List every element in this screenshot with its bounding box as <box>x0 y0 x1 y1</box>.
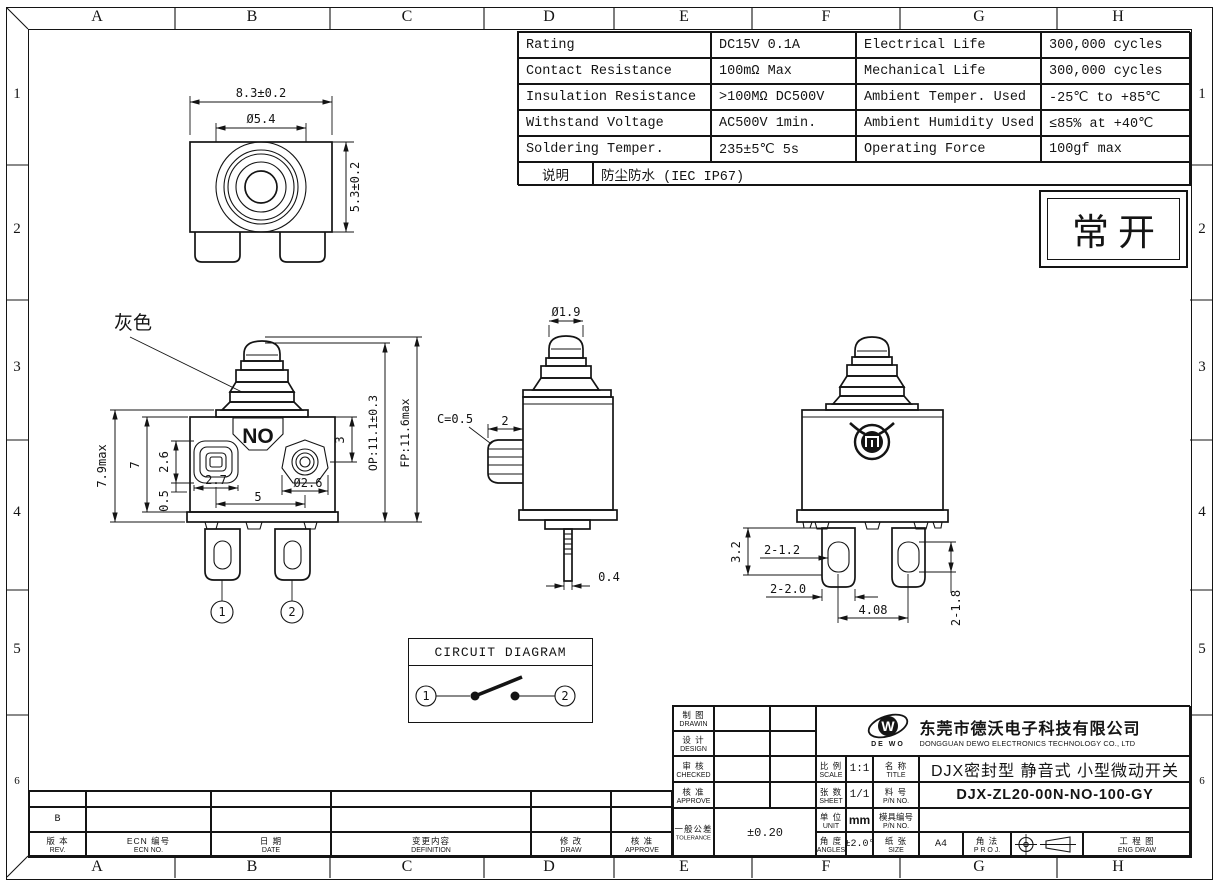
spec-note-label: 说明 <box>518 162 593 186</box>
paper-size-value: A4 <box>919 832 963 857</box>
label-cn: 单 位 <box>820 811 842 823</box>
first-angle-projection-icon <box>1012 833 1082 856</box>
spec-table: Rating DC15V 0.1A Electrical Life 300,00… <box>517 31 1190 185</box>
col-label-bottom: H <box>1103 858 1133 876</box>
row-label-right: 3 <box>1192 359 1212 376</box>
state-box: 常开 <box>1039 190 1188 268</box>
rev-empty-cell <box>531 807 611 832</box>
paper-size-label: 纸 张 SIZE <box>873 832 919 857</box>
row-label-left: 3 <box>7 359 27 376</box>
label-cn: 审 核 <box>682 760 704 772</box>
drawing-title: DJX密封型 静音式 小型微动开关 <box>919 756 1191 782</box>
scale-value: 1:1 <box>846 756 873 782</box>
col-label-bottom: D <box>534 858 564 876</box>
spec-label: Operating Force <box>856 136 1041 162</box>
rev-empty-cell <box>211 807 331 832</box>
unit-label: 单 位 UNIT <box>816 808 846 832</box>
title-block: 制 图 DRAWIN 设 计 DESIGN 审 核 CHECKED 核 准 AP… <box>672 705 1190 856</box>
label-en: DESIGN <box>680 746 707 753</box>
rev-empty-cell <box>611 807 673 832</box>
label-en: APPROVE <box>625 847 659 854</box>
rev-empty-cell <box>29 791 86 807</box>
col-label-top: B <box>237 8 267 26</box>
rev-header-rev: 版 本REV. <box>29 832 86 857</box>
circuit-terminal-1: 1 <box>422 689 429 703</box>
circuit-title: CIRCUIT DIAGRAM <box>409 639 592 666</box>
dim-boss-length: 2 <box>501 414 508 428</box>
label-cn: 日 期 <box>260 835 282 847</box>
rev-empty-cell <box>531 791 611 807</box>
row-label-left: 2 <box>7 221 27 238</box>
spec-label: Rating <box>518 32 711 58</box>
angles-value: ±2.0° <box>846 832 873 857</box>
rev-header-ecn: ECN 编号ECN NO. <box>86 832 211 857</box>
label-cn: 设 计 <box>682 734 704 746</box>
dim-base-height: 0.5 <box>157 490 171 512</box>
label-cn: 修 改 <box>560 835 582 847</box>
label-cn: 纸 张 <box>885 835 907 847</box>
label-cn: ECN 编号 <box>127 835 170 847</box>
label-en: CHECKED <box>676 772 710 779</box>
label-en: REV. <box>50 847 66 854</box>
spec-label: Withstand Voltage <box>518 110 711 136</box>
angles-label: 角 度 ANGLES <box>816 832 846 857</box>
label-en: SIZE <box>888 847 904 854</box>
circuit-diagram: CIRCUIT DIAGRAM 1 2 <box>408 638 593 723</box>
dim-height: 5.3±0.2 <box>348 162 362 213</box>
col-label-bottom: C <box>392 858 422 876</box>
spec-label: Mechanical Life <box>856 58 1041 84</box>
rev-header-draw: 修 改DRAW <box>531 832 611 857</box>
label-en: DATE <box>262 847 280 854</box>
spec-value: 235±5℃ 5s <box>711 136 856 162</box>
spec-label: Ambient Humidity Used <box>856 110 1041 136</box>
spec-value: 100mΩ Max <box>711 58 856 84</box>
rev-empty-cell <box>331 807 531 832</box>
spec-value: -25℃ to +85℃ <box>1041 84 1191 110</box>
circuit-symbol: 1 2 <box>409 666 592 722</box>
rev-header-definition: 变更内容DEFINITION <box>331 832 531 857</box>
label-en: TOLERANCE <box>676 836 711 842</box>
col-label-top: E <box>669 8 699 26</box>
dim-pitch: 5 <box>254 490 261 504</box>
col-label-top: A <box>82 8 112 26</box>
spec-label: Soldering Temper. <box>518 136 711 162</box>
spec-value: 300,000 cycles <box>1041 58 1191 84</box>
dim-circle-dia: Ø5.4 <box>247 112 276 126</box>
label-cn: 制 图 <box>682 709 704 721</box>
spec-label: Contact Resistance <box>518 58 711 84</box>
sheet-label: 张 数 SHEET <box>816 782 846 808</box>
rear-view: 3.2 2-1.2 2-2.0 4.08 2-1.8 <box>730 305 1010 650</box>
spec-value: 100gf max <box>1041 136 1191 162</box>
col-label-top: F <box>811 8 841 26</box>
checked-label: 审 核 CHECKED <box>673 756 714 782</box>
label-cn: 变更内容 <box>412 835 450 847</box>
dim-width: 8.3±0.2 <box>236 86 287 100</box>
dim-hole-width: 2-1.2 <box>764 543 800 557</box>
tolerance-value: ±0.20 <box>714 808 816 857</box>
dim-chamfer: C=0.5 <box>437 412 473 426</box>
row-label-left: 5 <box>7 641 27 658</box>
dim-terminal-sq: 2.6 <box>157 451 171 473</box>
company-block: W DE WO 东莞市德沃电子科技有限公司 DONGGUAN DEWO ELEC… <box>816 706 1191 756</box>
design-signature-cell <box>714 731 770 756</box>
logo-subtext: DE WO <box>872 741 906 748</box>
row-label-left: 6 <box>7 775 27 787</box>
terminal-1-label: 1 <box>218 605 225 619</box>
scale-label: 比 例 SCALE <box>816 756 846 782</box>
col-label-top: G <box>964 8 994 26</box>
label-cn: 工 程 图 <box>1119 835 1154 847</box>
label-cn: 料 号 <box>885 786 907 798</box>
col-label-bottom: A <box>82 858 112 876</box>
rev-empty-cell <box>86 807 211 832</box>
dim-total-height: 7.9max <box>95 444 109 487</box>
eng-draw-label: 工 程 图 ENG DRAW <box>1083 832 1191 857</box>
label-en: ENG DRAW <box>1118 847 1156 854</box>
company-name-cn: 东莞市德沃电子科技有限公司 <box>919 715 1140 739</box>
approve-signature-cell <box>714 782 770 808</box>
rev-empty-cell <box>611 791 673 807</box>
spec-label: Insulation Resistance <box>518 84 711 110</box>
label-cn: 张 数 <box>820 786 842 798</box>
dim-depth: 3 <box>333 436 347 443</box>
label-cn: 一般公差 <box>674 823 712 835</box>
label-cn: 角 法 <box>976 835 998 847</box>
gray-color-label: 灰色 <box>114 312 152 334</box>
dim-lug-offset: 3.2 <box>729 541 743 563</box>
dim-hole-height: 2-1.8 <box>949 590 963 626</box>
revision-table: B 版 本REV. ECN 编号ECN NO. 日 期DATE 变更内容DEFI… <box>28 790 672 856</box>
label-cn: 名 称 <box>885 760 907 772</box>
spec-note-value: 防尘防水 (IEC IP67) <box>593 162 1191 186</box>
rev-empty-cell <box>211 791 331 807</box>
dim-fp: FP:11.6max <box>398 398 412 467</box>
label-en: DRAWIN <box>679 721 707 728</box>
mold-number-value <box>919 808 1191 832</box>
top-view: 8.3±0.2 Ø5.4 5.3±0.2 <box>110 80 440 285</box>
col-label-top: H <box>1103 8 1133 26</box>
spec-value: ≤85% at +40℃ <box>1041 110 1191 136</box>
unit-value: mm <box>846 808 873 832</box>
label-en: SHEET <box>819 798 842 805</box>
dim-op: OP:11.1±0.3 <box>366 395 380 471</box>
dim-terminal-dia: Ø2.6 <box>294 476 323 490</box>
row-label-right: 4 <box>1192 504 1212 521</box>
no-marking: NO <box>242 425 274 448</box>
spec-value: AC500V 1min. <box>711 110 856 136</box>
part-number-value: DJX-ZL20-00N-NO-100-GY <box>919 782 1191 808</box>
spec-label: Ambient Temper. Used <box>856 84 1041 110</box>
title-label: 名 称 TITLE <box>873 756 919 782</box>
spec-value: 300,000 cycles <box>1041 32 1191 58</box>
approve-date-cell <box>770 782 816 808</box>
rev-value: B <box>29 807 86 832</box>
dewo-logo: W DE WO <box>866 713 912 750</box>
company-name-en: DONGGUAN DEWO ELECTRONICS TECHNOLOGY CO.… <box>919 739 1140 748</box>
drawn-signature-cell <box>714 706 770 731</box>
row-label-right: 5 <box>1192 641 1212 658</box>
tolerance-label: 一般公差 TOLERANCE <box>673 808 714 857</box>
checked-date-cell <box>770 756 816 782</box>
rev-header-date: 日 期DATE <box>211 832 331 857</box>
dim-lug-pitch: 4.08 <box>859 603 888 617</box>
projection-label: 角 法 P R O J. <box>963 832 1011 857</box>
dim-lug-width: 2-2.0 <box>770 582 806 596</box>
label-cn: 核 准 <box>682 786 704 798</box>
checked-signature-cell <box>714 756 770 782</box>
col-label-top: C <box>392 8 422 26</box>
circuit-terminal-2: 2 <box>561 689 568 703</box>
label-en: P/N NO. <box>883 823 909 830</box>
dewo-emblem <box>850 423 894 459</box>
dim-body-height: 7 <box>128 461 142 468</box>
engineering-drawing-page: A B C D E F G H A B C D E F G H 1 2 3 4 … <box>0 0 1219 884</box>
row-label-right: 2 <box>1192 221 1212 238</box>
label-en: SCALE <box>820 772 843 779</box>
design-label: 设 计 DESIGN <box>673 731 714 756</box>
col-label-bottom: E <box>669 858 699 876</box>
drawn-label: 制 图 DRAWIN <box>673 706 714 731</box>
col-label-top: D <box>534 8 564 26</box>
col-label-bottom: G <box>964 858 994 876</box>
label-en: P/N NO. <box>883 798 909 805</box>
label-cn: 版 本 <box>46 835 68 847</box>
label-en: ECN NO. <box>134 847 163 854</box>
label-en: APPROVE <box>677 798 711 805</box>
spec-value: >100MΩ DC500V <box>711 84 856 110</box>
label-cn: 比 例 <box>820 760 842 772</box>
drawn-date-cell <box>770 706 816 731</box>
part-number-label: 料 号 P/N NO. <box>873 782 919 808</box>
projection-symbol-cell <box>1011 832 1083 857</box>
rev-empty-cell <box>86 791 211 807</box>
col-label-bottom: B <box>237 858 267 876</box>
label-en: P R O J. <box>974 847 1000 854</box>
logo-letter: W <box>882 718 896 734</box>
dim-tip-dia: Ø1.9 <box>552 305 581 319</box>
label-cn: 模具编号 <box>879 811 913 823</box>
label-en: DRAW <box>560 847 581 854</box>
row-label-left: 4 <box>7 504 27 521</box>
state-box-text: 常开 <box>1047 198 1180 260</box>
label-en: DEFINITION <box>411 847 451 854</box>
label-cn: 角 度 <box>820 835 842 847</box>
label-en: ANGLES <box>817 847 845 854</box>
dim-terminal-width: 2.7 <box>205 473 227 487</box>
spec-label: Electrical Life <box>856 32 1041 58</box>
design-date-cell <box>770 731 816 756</box>
rev-header-approve: 核 准APPROVE <box>611 832 673 857</box>
label-cn: 核 准 <box>631 835 653 847</box>
sheet-value: 1/1 <box>846 782 873 808</box>
label-en: UNIT <box>823 823 839 830</box>
mold-number-label: 模具编号 P/N NO. <box>873 808 919 832</box>
approve-label: 核 准 APPROVE <box>673 782 714 808</box>
company-names: 东莞市德沃电子科技有限公司 DONGGUAN DEWO ELECTRONICS … <box>919 715 1140 748</box>
label-en: TITLE <box>886 772 905 779</box>
row-label-right: 6 <box>1192 775 1212 787</box>
front-view: 灰色 NO 1 2 7.9max <box>90 295 440 640</box>
spec-value: DC15V 0.1A <box>711 32 856 58</box>
col-label-bottom: F <box>811 858 841 876</box>
side-view: Ø1.9 C=0.5 2 0.4 <box>425 290 635 600</box>
row-label-left: 1 <box>7 86 27 103</box>
terminal-2-label: 2 <box>288 605 295 619</box>
rev-empty-cell <box>331 791 531 807</box>
dim-pin-width: 0.4 <box>598 570 620 584</box>
row-label-right: 1 <box>1192 86 1212 103</box>
